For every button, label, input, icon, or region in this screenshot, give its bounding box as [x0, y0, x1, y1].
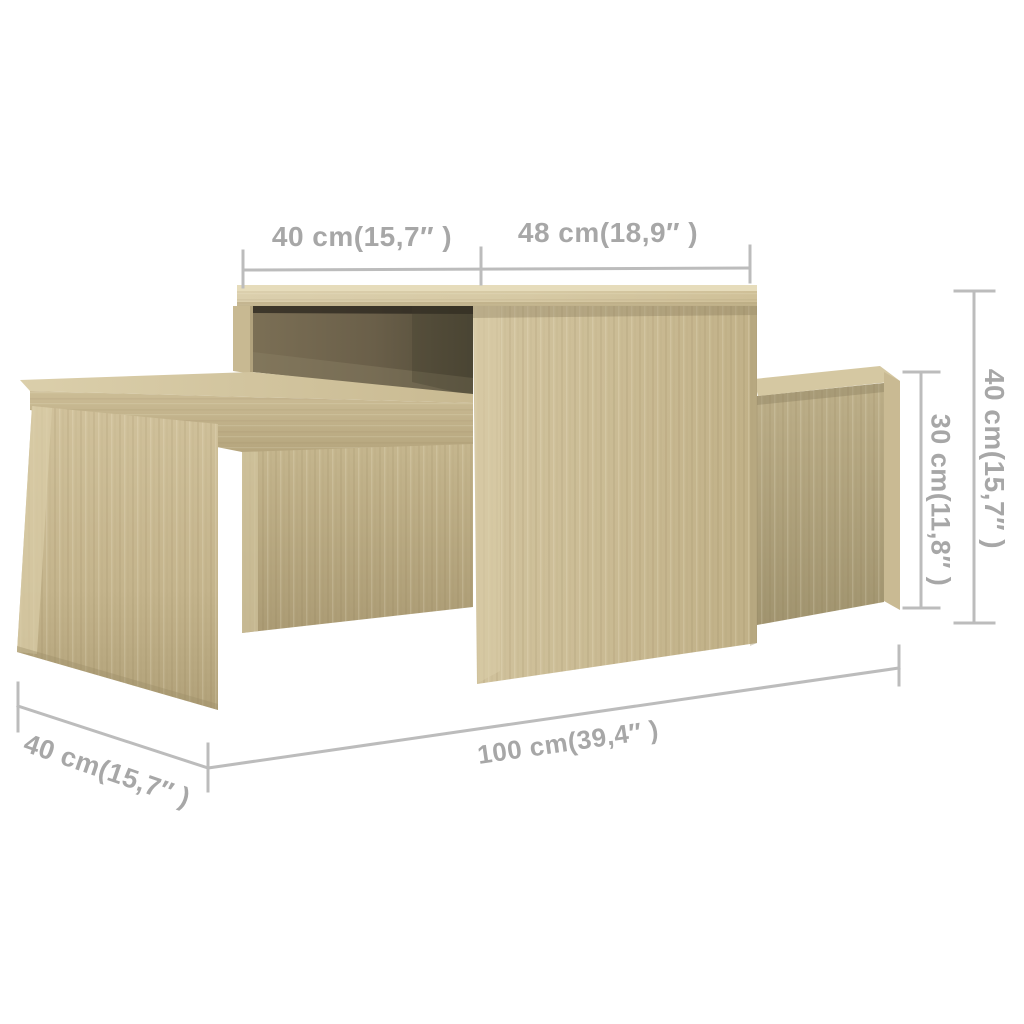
tall-table-right-side-panel — [473, 301, 757, 684]
dim-top-width — [243, 246, 750, 287]
nesting-table-right-end — [754, 366, 900, 625]
dim-label-top-main: 48 cm(18,9″ ) — [518, 219, 698, 247]
dim-label-height-low: 30 cm(11,8″ ) — [927, 414, 954, 587]
right-end-panel-edge — [884, 372, 900, 610]
dim-label-top-overhang: 40 cm(15,7″ ) — [272, 223, 452, 251]
nesting-table-left-end-panel — [17, 406, 218, 710]
furniture-illustration — [0, 0, 1024, 1024]
tall-table-left-side-panel — [242, 430, 473, 633]
tall-table-top-panel — [237, 285, 757, 306]
dim-label-height-tall: 40 cm(15,7″ ) — [980, 369, 1008, 549]
product-dimension-diagram: 40 cm(15,7″ ) 48 cm(18,9″ ) 40 cm(15,7″ … — [0, 0, 1024, 1024]
